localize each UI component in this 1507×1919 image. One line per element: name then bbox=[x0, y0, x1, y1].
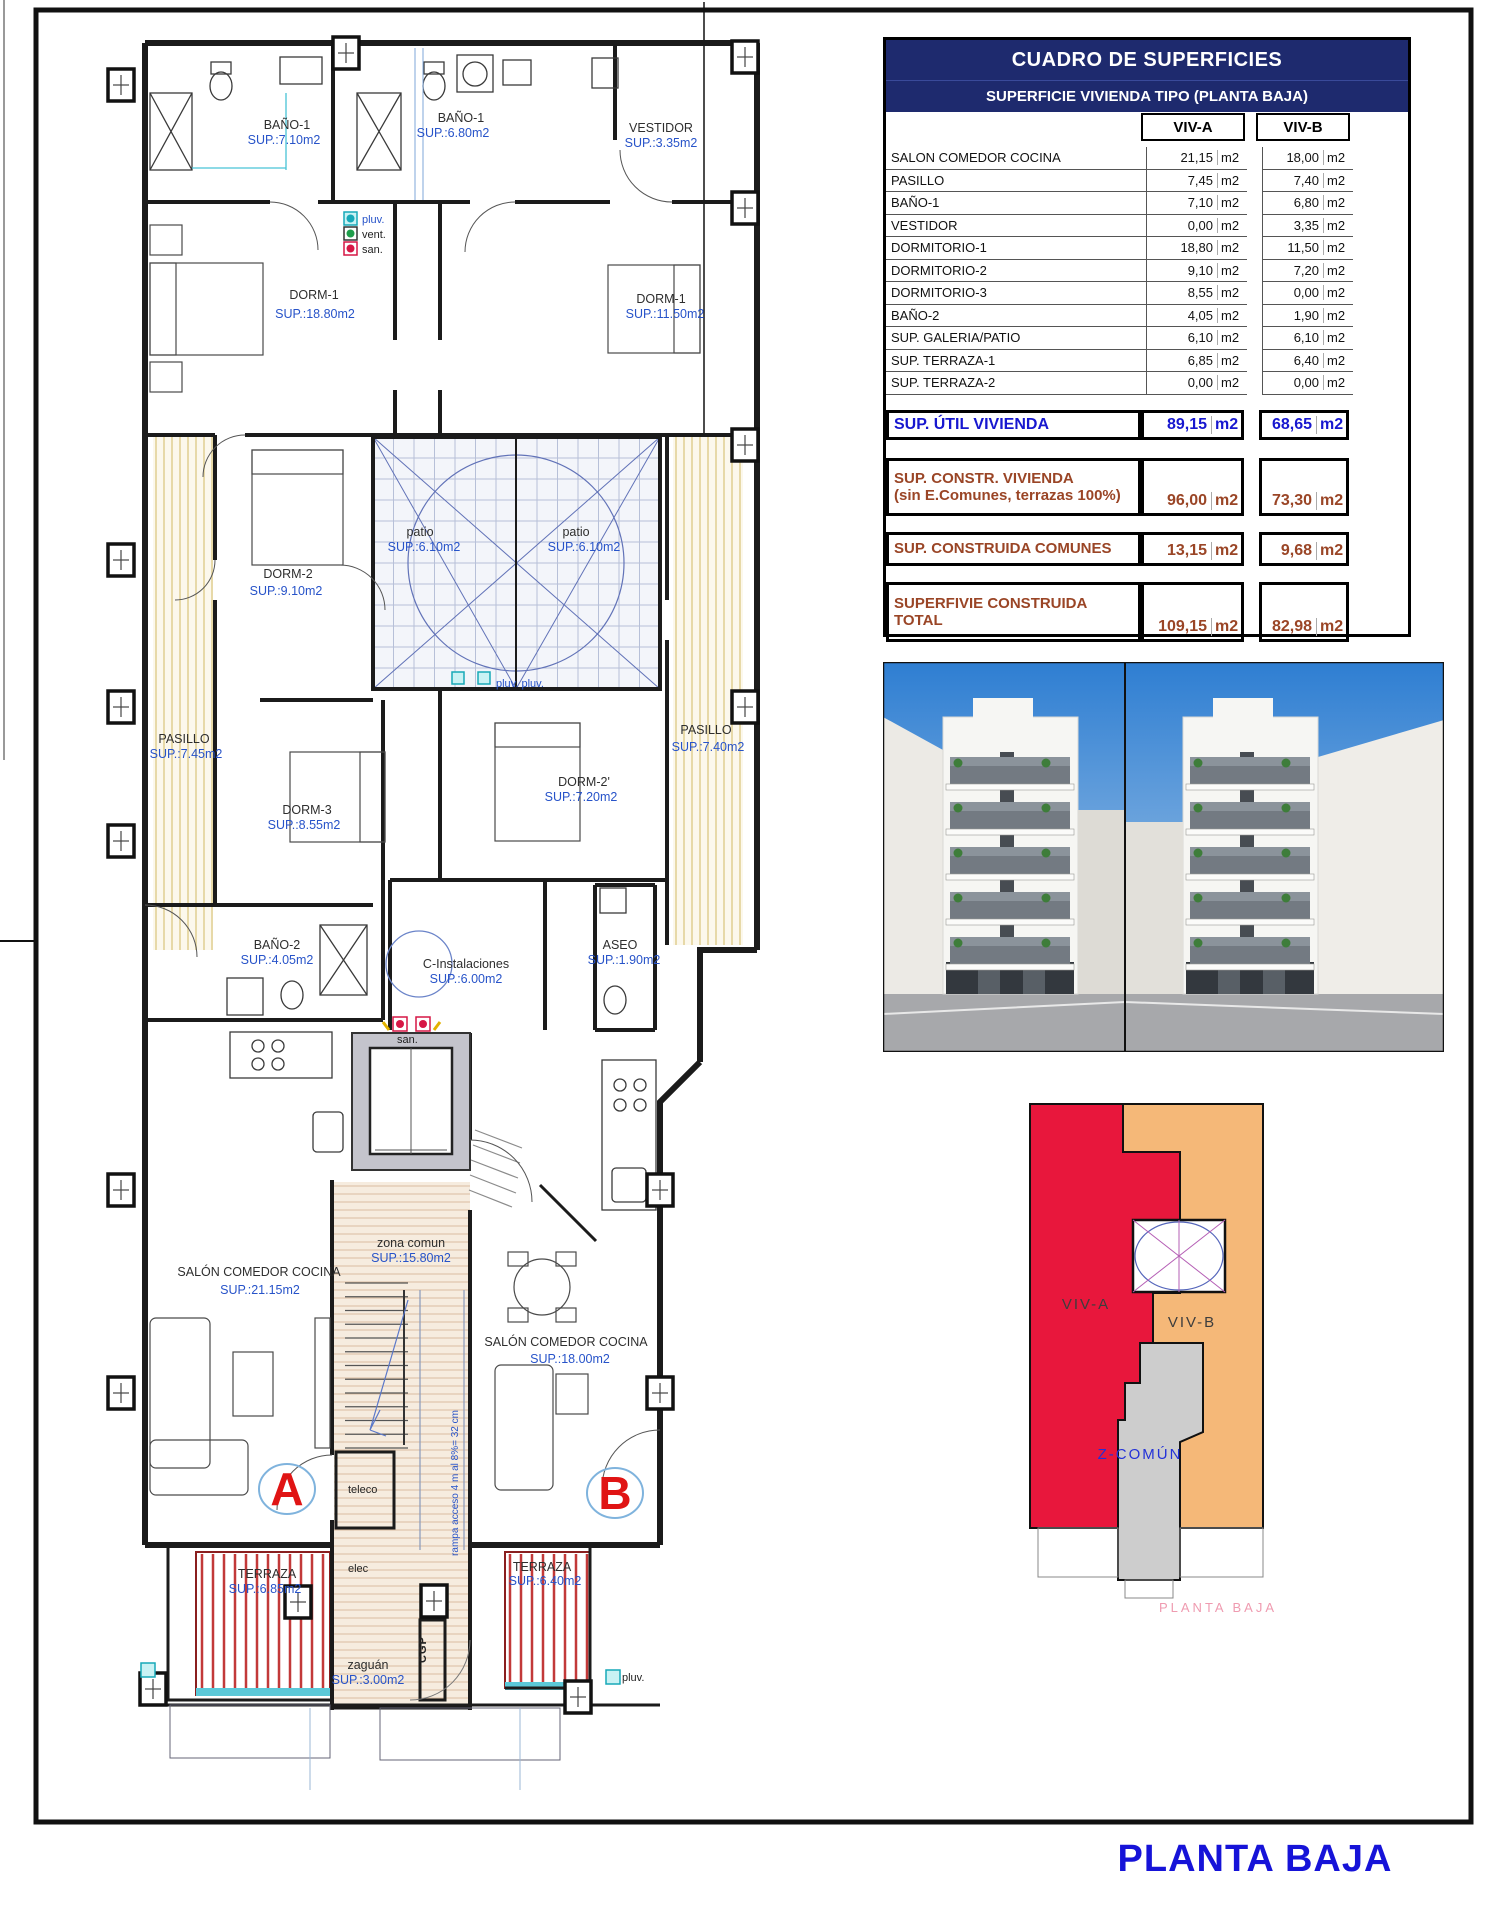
row-value-b: 6,80m2 bbox=[1262, 192, 1353, 215]
diagram-patio-box bbox=[1133, 1220, 1225, 1292]
total-label2: TOTAL bbox=[894, 612, 943, 629]
row-label: DORMITORIO-1 bbox=[886, 237, 1146, 260]
util-b: 68,65 bbox=[1262, 416, 1316, 434]
room-name-label: SALÓN COMEDOR COCINA bbox=[484, 1334, 648, 1349]
room-name-label: TERRAZA bbox=[513, 1560, 572, 1574]
plan-sheet: A B pluv. vent. san. pluv. pluv. san. te… bbox=[0, 0, 1507, 1919]
room-name-label: PASILLO bbox=[680, 723, 731, 737]
window-plus-icon bbox=[333, 37, 359, 69]
floor-plan: A B pluv. vent. san. pluv. pluv. san. te… bbox=[0, 0, 800, 1919]
table-row: BAÑO-24,05m21,90m2 bbox=[886, 305, 1408, 328]
table-row: VESTIDOR0,00m23,35m2 bbox=[886, 215, 1408, 238]
room-area-label: SUP.:7.20m2 bbox=[545, 790, 618, 804]
row-value-a: 0,00m2 bbox=[1146, 372, 1247, 395]
total-a: 109,15 bbox=[1144, 618, 1211, 636]
room-area-label: SUP.:7.40m2 bbox=[672, 740, 745, 754]
unit-a-letter: A bbox=[270, 1463, 303, 1515]
room-area-label: SUP.:6.10m2 bbox=[388, 540, 461, 554]
zoning-shapes bbox=[1030, 1104, 1263, 1580]
row-label: SUP. TERRAZA-1 bbox=[886, 350, 1146, 373]
unit: m2 bbox=[1316, 492, 1346, 510]
room-area-label: SUP.:9.10m2 bbox=[250, 584, 323, 598]
row-label: DORMITORIO-2 bbox=[886, 260, 1146, 283]
zoning-diagram: VIV-A VIV-B Z-COMÚN PLANTA BAJA bbox=[1018, 1090, 1278, 1630]
row-value-b: 6,10m2 bbox=[1262, 327, 1353, 350]
elec-label: elec bbox=[348, 1563, 369, 1575]
window-plus-icon bbox=[647, 1174, 673, 1206]
window-plus-icon bbox=[647, 1377, 673, 1409]
window-plus-icon bbox=[565, 1681, 591, 1713]
constr-label2: (sin E.Comunes, terrazas 100%) bbox=[894, 487, 1121, 504]
table-row: DORMITORIO-29,10m27,20m2 bbox=[886, 260, 1408, 283]
surface-table: CUADRO DE SUPERFICIES SUPERFICIE VIVIEND… bbox=[883, 37, 1411, 637]
room-area-label: SUP.:21.15m2 bbox=[220, 1283, 300, 1297]
comunes-label: SUP. CONSTRUIDA COMUNES bbox=[886, 532, 1141, 566]
room-name-label: DORM-2' bbox=[558, 775, 610, 789]
unit: m2 bbox=[1211, 618, 1241, 636]
teleco-label: teleco bbox=[348, 1484, 377, 1496]
room-name-label: DORM-2 bbox=[263, 567, 312, 581]
comunes-row: SUP. CONSTRUIDA COMUNES 13,15m2 9,68m2 bbox=[886, 532, 1408, 566]
row-value-b: 3,35m2 bbox=[1262, 215, 1353, 238]
room-area-label: SUP.:6.00m2 bbox=[430, 972, 503, 986]
room-area-label: SUP.:6.40m2 bbox=[509, 1574, 582, 1588]
table-row: DORMITORIO-38,55m20,00m2 bbox=[886, 282, 1408, 305]
comunes-a: 13,15 bbox=[1144, 542, 1211, 560]
constr-a: 96,00 bbox=[1144, 492, 1211, 510]
building-render bbox=[883, 662, 1444, 1052]
unit: m2 bbox=[1211, 416, 1241, 434]
row-label: SUP. TERRAZA-2 bbox=[886, 372, 1146, 395]
row-label: SUP. GALERIA/PATIO bbox=[886, 327, 1146, 350]
unit: m2 bbox=[1316, 542, 1346, 560]
row-value-a: 0,00m2 bbox=[1146, 215, 1247, 238]
window-plus-icon bbox=[732, 691, 758, 723]
total-row: SUPERFIVIE CONSTRUIDA TOTAL 109,15m2 82,… bbox=[886, 582, 1408, 642]
unit: m2 bbox=[1316, 618, 1346, 636]
window-plus-icon bbox=[108, 1377, 134, 1409]
row-value-a: 6,85m2 bbox=[1146, 350, 1247, 373]
row-value-b: 0,00m2 bbox=[1262, 372, 1353, 395]
room-area-label: SUP.:11.50m2 bbox=[626, 307, 705, 321]
ramp-label: rampa acceso 4 m al 8%= 32 cm bbox=[450, 1410, 461, 1556]
window-plus-icon bbox=[732, 429, 758, 461]
row-value-a: 8,55m2 bbox=[1146, 282, 1247, 305]
diagram-viv-b-label: VIV-B bbox=[1168, 1314, 1216, 1331]
room-name-label: C-Instalaciones bbox=[423, 957, 509, 971]
row-value-a: 7,45m2 bbox=[1146, 170, 1247, 193]
room-name-label: BAÑO-1 bbox=[264, 118, 311, 132]
window-plus-icon bbox=[421, 1585, 447, 1617]
window-plus-icon bbox=[108, 825, 134, 857]
row-value-a: 21,15m2 bbox=[1146, 147, 1247, 170]
unit-a-badge: A bbox=[259, 1463, 315, 1515]
table-row: SUP. GALERIA/PATIO6,10m26,10m2 bbox=[886, 327, 1408, 350]
table-header-row: VIV-A VIV-B bbox=[886, 112, 1408, 139]
elevator-shaft bbox=[352, 1033, 470, 1170]
util-row: SUP. ÚTIL VIVIENDA 89,15m2 68,65m2 bbox=[886, 410, 1408, 440]
unit: m2 bbox=[1211, 492, 1241, 510]
util-label: SUP. ÚTIL VIVIENDA bbox=[886, 410, 1141, 440]
row-label: BAÑO-1 bbox=[886, 192, 1146, 215]
room-name-label: patio bbox=[562, 525, 589, 539]
room-name-label: DORM-3 bbox=[282, 803, 331, 817]
row-value-b: 6,40m2 bbox=[1262, 350, 1353, 373]
room-area-label: SUP.:7.45m2 bbox=[150, 747, 223, 761]
room-area-label: SUP.:7.10m2 bbox=[248, 133, 321, 147]
room-name-label: BAÑO-2 bbox=[254, 938, 301, 952]
row-value-b: 1,90m2 bbox=[1262, 305, 1353, 328]
window-plus-icon bbox=[108, 544, 134, 576]
window-plus-icon bbox=[108, 691, 134, 723]
table-row: BAÑO-17,10m26,80m2 bbox=[886, 192, 1408, 215]
table-rows: SALON COMEDOR COCINA21,15m218,00m2PASILL… bbox=[886, 147, 1408, 395]
row-label: BAÑO-2 bbox=[886, 305, 1146, 328]
table-row: SUP. TERRAZA-16,85m26,40m2 bbox=[886, 350, 1408, 373]
table-title: CUADRO DE SUPERFICIES bbox=[886, 40, 1408, 80]
row-value-a: 9,10m2 bbox=[1146, 260, 1247, 283]
row-value-b: 11,50m2 bbox=[1262, 237, 1353, 260]
diagram-viv-a-label: VIV-A bbox=[1062, 1296, 1110, 1313]
table-row: DORMITORIO-118,80m211,50m2 bbox=[886, 237, 1408, 260]
room-area-label: SUP.:8.55m2 bbox=[268, 818, 341, 832]
total-b: 82,98 bbox=[1262, 618, 1316, 636]
unit: m2 bbox=[1211, 542, 1241, 560]
room-area-label: SUP.:1.90m2 bbox=[588, 953, 661, 967]
pluv-right-label: pluv. bbox=[622, 1672, 644, 1684]
table-row: PASILLO7,45m27,40m2 bbox=[886, 170, 1408, 193]
window-plus-icon bbox=[108, 69, 134, 101]
table-subtitle: SUPERFICIE VIVIENDA TIPO (PLANTA BAJA) bbox=[886, 80, 1408, 112]
room-area-label: SUP.:3.00m2 bbox=[332, 1673, 405, 1687]
legend-san-label: san. bbox=[362, 244, 383, 256]
diagram-caption: PLANTA BAJA bbox=[1159, 1600, 1277, 1615]
room-name-label: BAÑO-1 bbox=[438, 111, 485, 125]
room-name-label: DORM-1 bbox=[289, 288, 338, 302]
window-plus-icon bbox=[732, 192, 758, 224]
row-value-b: 18,00m2 bbox=[1262, 147, 1353, 170]
window-plus-icon bbox=[732, 41, 758, 73]
room-name-label: PASILLO bbox=[158, 732, 209, 746]
sheet-title: PLANTA BAJA bbox=[1095, 1838, 1415, 1881]
total-label1: SUPERFIVIE CONSTRUIDA bbox=[894, 595, 1087, 612]
cgp-label: CGP bbox=[417, 1636, 429, 1663]
room-area-label: SUP.:6.80m2 bbox=[417, 126, 490, 140]
unit-b-letter: B bbox=[598, 1467, 631, 1519]
room-name-label: VESTIDOR bbox=[629, 121, 693, 135]
row-value-a: 4,05m2 bbox=[1146, 305, 1247, 328]
room-name-label: zona comun bbox=[377, 1236, 445, 1250]
patio-pluv-label: pluv. pluv. bbox=[496, 678, 544, 690]
row-label: SALON COMEDOR COCINA bbox=[886, 147, 1146, 170]
row-value-b: 7,20m2 bbox=[1262, 260, 1353, 283]
table-row: SALON COMEDOR COCINA21,15m218,00m2 bbox=[886, 147, 1408, 170]
room-name-label: DORM-1 bbox=[636, 292, 685, 306]
unit: m2 bbox=[1316, 416, 1346, 434]
table-row: SUP. TERRAZA-20,00m20,00m2 bbox=[886, 372, 1408, 395]
pasillo-hatch-left bbox=[153, 437, 213, 950]
room-area-label: SUP.:6.85m2 bbox=[229, 1582, 302, 1596]
room-area-label: SUP.:18.00m2 bbox=[530, 1352, 610, 1366]
row-value-b: 0,00m2 bbox=[1262, 282, 1353, 305]
room-area-label: SUP.:3.35m2 bbox=[625, 136, 698, 150]
constr-row: SUP. CONSTR. VIVIENDA (sin E.Comunes, te… bbox=[886, 458, 1408, 516]
diagram-z-comun-label: Z-COMÚN bbox=[1098, 1446, 1183, 1463]
legend-pluv-label: pluv. bbox=[362, 214, 384, 226]
util-a: 89,15 bbox=[1144, 416, 1211, 434]
col-header-viv-a: VIV-A bbox=[1141, 113, 1245, 141]
room-name-label: zaguán bbox=[347, 1658, 388, 1672]
unit-b-badge: B bbox=[587, 1467, 643, 1519]
row-label: PASILLO bbox=[886, 170, 1146, 193]
row-value-a: 7,10m2 bbox=[1146, 192, 1247, 215]
legend-vent-label: vent. bbox=[362, 229, 386, 241]
row-label: VESTIDOR bbox=[886, 215, 1146, 238]
room-name-label: TERRAZA bbox=[238, 1567, 297, 1581]
row-value-a: 6,10m2 bbox=[1146, 327, 1247, 350]
window-plus-icon bbox=[140, 1673, 166, 1705]
col-header-viv-b: VIV-B bbox=[1256, 113, 1350, 141]
room-area-label: SUP.:4.05m2 bbox=[241, 953, 314, 967]
constr-b: 73,30 bbox=[1262, 492, 1316, 510]
room-area-label: SUP.:18.80m2 bbox=[275, 307, 355, 321]
row-label: DORMITORIO-3 bbox=[886, 282, 1146, 305]
room-name-label: ASEO bbox=[603, 938, 638, 952]
room-area-label: SUP.:6.10m2 bbox=[548, 540, 621, 554]
room-area-label: SUP.:15.80m2 bbox=[371, 1251, 451, 1265]
constr-label1: SUP. CONSTR. VIVIENDA bbox=[894, 470, 1074, 487]
property-lines bbox=[170, 1705, 560, 1790]
row-value-a: 18,80m2 bbox=[1146, 237, 1247, 260]
window-plus-icon bbox=[108, 1174, 134, 1206]
comunes-b: 9,68 bbox=[1262, 542, 1316, 560]
room-name-label: patio bbox=[406, 525, 433, 539]
row-value-b: 7,40m2 bbox=[1262, 170, 1353, 193]
room-name-label: SALÓN COMEDOR COCINA bbox=[177, 1264, 341, 1279]
san-label: san. bbox=[397, 1034, 418, 1046]
